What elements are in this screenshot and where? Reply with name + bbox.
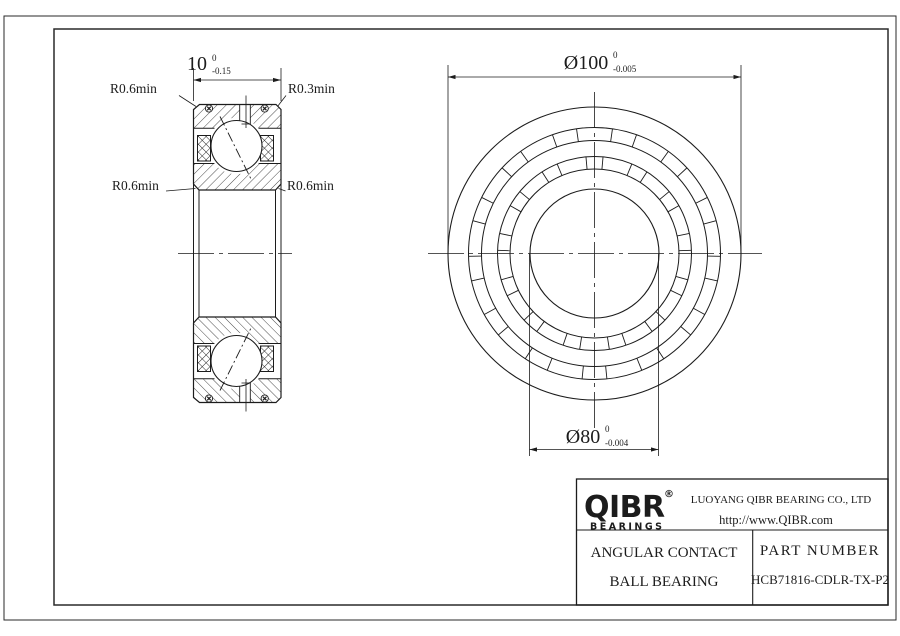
company-website: http://www.QIBR.com [719,513,833,527]
dim-od-tol-lower: -0.005 [613,64,637,74]
section-view: 10 0 -0.15 R0.6min R0.3min R0.6min R0.6m… [110,53,335,412]
section-bottom-half [194,317,282,412]
width-dimension: 10 0 -0.15 [187,53,281,101]
dim-bore-tol-lower: -0.004 [605,438,629,448]
product-name-line1: ANGULAR CONTACT [591,545,738,561]
front-view: Ø100 0 -0.005 Ø80 0 -0.004 [428,50,762,456]
logo-text: QIBR [584,490,665,525]
outer-border [4,16,896,620]
section-top-half [194,96,282,191]
dim-bore-value: Ø80 [566,426,600,448]
company-name: LUOYANG QIBR BEARING CO., LTD [691,494,872,506]
engineering-drawing: 10 0 -0.15 R0.6min R0.3min R0.6min R0.6m… [0,0,900,636]
product-name-line2: BALL BEARING [609,574,718,590]
drawing-frame [4,16,896,620]
dim-od-tol-upper: 0 [613,50,618,60]
ball [211,336,262,387]
cage-section-left [198,136,211,162]
cage-rivet-left [205,105,212,112]
label-r-top-left: R0.6min [110,81,157,96]
dim-width-tol-upper: 0 [212,53,217,63]
dim-od-value: Ø100 [564,52,608,74]
dim-width-value: 10 [187,53,207,75]
part-number-value: HCB71816-CDLR-TX-P2 [751,572,889,587]
dim-width-tol-lower: -0.15 [212,66,231,76]
label-r-top-right: R0.3min [288,81,335,96]
part-number-label: PART NUMBER [760,543,880,559]
bore-dimension: Ø80 0 -0.004 [530,254,659,457]
dim-bore-tol-upper: 0 [605,424,610,434]
drawing-sheet: 10 0 -0.15 R0.6min R0.3min R0.6min R0.6m… [0,0,900,636]
ball [211,121,262,172]
title-block: QIBR ® BEARINGS LUOYANG QIBR BEARING CO.… [577,479,889,605]
label-r-mid-right: R0.6min [287,178,334,193]
logo-subtext: BEARINGS [590,522,665,533]
cage-rivet-right [261,105,268,112]
brand-logo: QIBR ® BEARINGS [584,489,674,533]
registered-mark: ® [664,489,674,500]
label-r-mid-left: R0.6min [112,178,159,193]
